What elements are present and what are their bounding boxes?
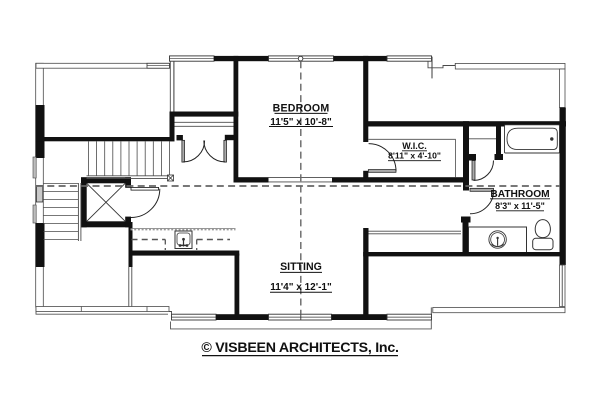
svg-text:11'4" x 12'-1": 11'4" x 12'-1" <box>270 282 332 293</box>
svg-text:8'11" x 4'-10": 8'11" x 4'-10" <box>388 151 441 161</box>
svg-text:BEDROOM: BEDROOM <box>273 102 330 114</box>
svg-text:© VISBEEN ARCHITECTS, Inc.: © VISBEEN ARCHITECTS, Inc. <box>201 340 398 356</box>
svg-text:SITTING: SITTING <box>280 261 322 273</box>
svg-text:8'3" x 11'-5": 8'3" x 11'-5" <box>495 201 545 211</box>
